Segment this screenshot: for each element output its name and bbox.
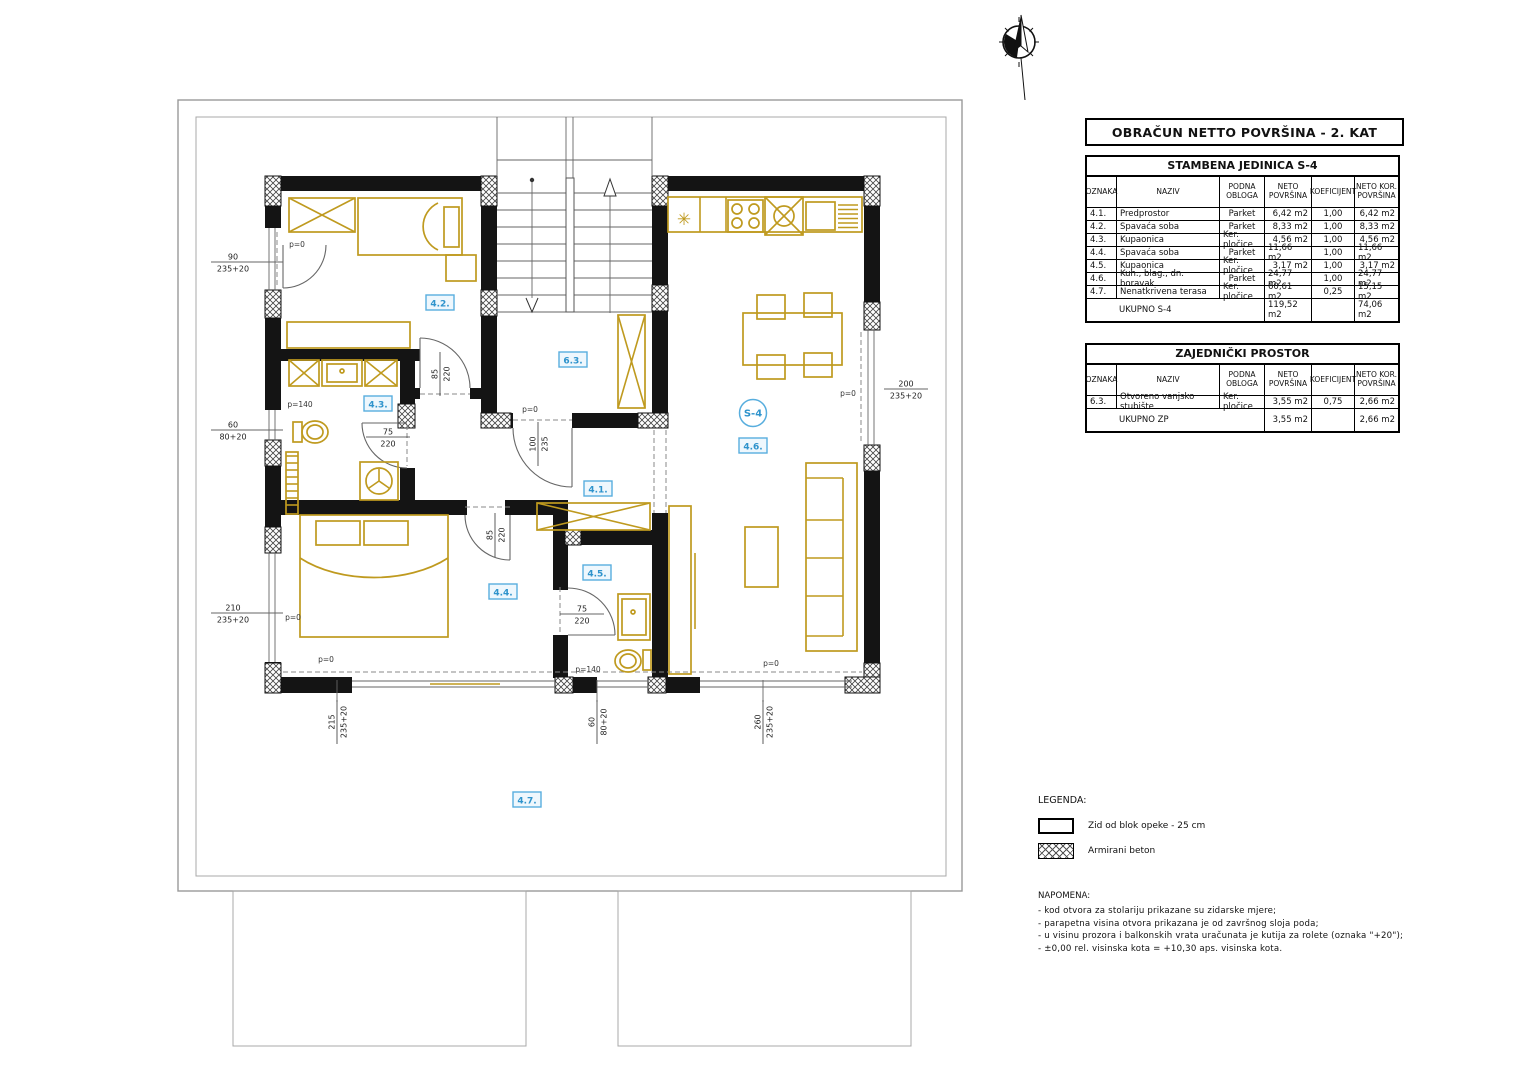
cell-podna: Ker. pločice: [1219, 233, 1264, 246]
cell-naziv: Spavaća soba: [1116, 220, 1219, 233]
wall-segment: [652, 513, 668, 677]
room-label: 4.5.: [583, 565, 611, 580]
cell-koeficijent: 1,00: [1311, 246, 1354, 259]
concrete-column: [565, 530, 581, 545]
cell-koeficijent: 1,00: [1311, 207, 1354, 220]
concrete-column: [864, 176, 880, 206]
concrete-column: [265, 527, 281, 553]
room-label: 4.3.: [364, 396, 392, 411]
concrete-column: [265, 290, 281, 318]
concrete-column: [265, 663, 281, 693]
furniture-item: [444, 207, 459, 247]
furniture-item: [316, 521, 360, 545]
column-header: PODNA OBLOGA: [1219, 365, 1264, 395]
table-title: ZAJEDNIČKI PROSTOR: [1087, 345, 1398, 365]
column-header: NETO POVRŠINA: [1264, 177, 1311, 207]
column-header: NAZIV: [1116, 177, 1219, 207]
cell-naziv: Kupaonica: [1116, 233, 1219, 246]
dimension-label: 85220: [486, 513, 507, 557]
furniture-item: [757, 295, 785, 319]
notes-title: NAPOMENA:: [1038, 891, 1403, 901]
concrete-column: [864, 302, 880, 330]
svg-text:100: 100: [529, 436, 538, 451]
reinforced-concrete-symbol: [1038, 843, 1074, 859]
wall-segment: [864, 445, 880, 693]
total-spacer: [1311, 298, 1354, 321]
legend-item-label: Zid od blok opeke - 25 cm: [1088, 821, 1205, 831]
concrete-column: [638, 413, 668, 428]
legend: LEGENDA: Zid od blok opeke - 25 cm Armir…: [1038, 795, 1205, 868]
room-label-text: 4.5.: [587, 570, 606, 580]
room-label: 4.7.: [513, 792, 541, 807]
concrete-column: [864, 445, 880, 471]
room-label-text: 4.1.: [588, 486, 607, 496]
total-label: UKUPNO ZP: [1087, 408, 1264, 431]
wall-segment: [415, 388, 420, 399]
cell-oznaka: 4.6.: [1087, 272, 1116, 285]
svg-text:220: 220: [443, 366, 452, 381]
total-spacer: [1311, 408, 1354, 431]
wall-segment: [652, 176, 880, 191]
cell-neto: 11,66 m2: [1264, 246, 1311, 259]
wall-segment: [265, 176, 497, 191]
parapet-label: p=140: [287, 400, 313, 409]
parapet-label: p=0: [289, 240, 305, 249]
stair-down-arrow-icon: [526, 298, 538, 312]
dimension-label: 85220: [431, 352, 452, 396]
svg-text:220: 220: [498, 527, 507, 542]
dimension-label: 200235+20: [884, 380, 928, 401]
total-label: UKUPNO S-4: [1087, 298, 1264, 321]
unit-label-text: S-4: [744, 409, 762, 420]
drawing-sheet: 4.1.4.2.4.3.4.4.4.5.4.6.4.7.6.3.S-490235…: [0, 0, 1527, 1080]
svg-text:235+20: 235+20: [217, 616, 249, 625]
concrete-column: [481, 290, 497, 316]
wall-segment: [281, 500, 467, 515]
svg-text:260: 260: [754, 714, 763, 729]
stair-railing: [566, 178, 574, 312]
cell-koeficijent: 0,75: [1311, 395, 1354, 408]
furniture-item: [622, 599, 646, 635]
furniture-item: [806, 202, 835, 230]
door-swing: [568, 588, 615, 635]
cell-neto-kor: 11,66 m2: [1354, 246, 1398, 259]
concrete-column: [555, 677, 573, 693]
svg-text:200: 200: [898, 380, 913, 389]
svg-text:80+20: 80+20: [600, 708, 609, 735]
room-label: 4.2.: [426, 295, 454, 310]
area-table: STAMBENA JEDINICA S-4OZNAKANAZIVPODNA OB…: [1085, 155, 1400, 323]
cell-neto: 8,33 m2: [1264, 220, 1311, 233]
cell-oznaka: 4.4.: [1087, 246, 1116, 259]
note-line: - parapetna visina otvora prikazana je o…: [1038, 919, 1403, 929]
svg-text:210: 210: [225, 604, 240, 613]
dimension-label: 6080+20: [588, 700, 609, 744]
svg-text:75: 75: [577, 605, 587, 614]
furniture-item: [757, 355, 785, 379]
svg-text:85: 85: [431, 369, 440, 379]
parapet-label: p=0: [285, 613, 301, 622]
concrete-column: [265, 440, 281, 466]
total-neto-kor: 2,66 m2: [1354, 408, 1398, 431]
room-label-text: 4.6.: [743, 443, 762, 453]
sheet-border: [618, 891, 911, 1046]
svg-text:235+20: 235+20: [766, 706, 775, 738]
wall-segment: [470, 388, 481, 399]
drawing-title: OBRAČUN NETTO POVRŠINA - 2. KAT: [1085, 118, 1404, 146]
room-label-text: 6.3.: [563, 357, 582, 367]
column-header: NETO POVRŠINA: [1264, 365, 1311, 395]
svg-text:85: 85: [486, 530, 495, 540]
cell-podna: Ker. pločice: [1219, 259, 1264, 272]
room-label: 4.4.: [489, 584, 517, 599]
cell-oznaka: 4.2.: [1087, 220, 1116, 233]
cell-neto-kor: 15,15 m2: [1354, 285, 1398, 298]
cell-oznaka: 6.3.: [1087, 395, 1116, 408]
column-header: NETO KOR. POVRŠINA: [1354, 177, 1398, 207]
concrete-column: [481, 413, 511, 428]
svg-text:80+20: 80+20: [219, 433, 246, 442]
cell-neto: 3,55 m2: [1264, 395, 1311, 408]
note-line: - u visinu prozora i balkonskih vrata ur…: [1038, 931, 1403, 941]
cell-naziv: Otvoreno vanjsko stubište: [1116, 395, 1219, 408]
svg-text:220: 220: [574, 617, 589, 626]
cell-koeficijent: 0,25: [1311, 285, 1354, 298]
legend-title: LEGENDA:: [1038, 795, 1205, 806]
svg-text:235: 235: [541, 436, 550, 451]
parapet-label: p=0: [522, 405, 538, 414]
column-header: PODNA OBLOGA: [1219, 177, 1264, 207]
cell-neto-kor: 8,33 m2: [1354, 220, 1398, 233]
cell-naziv: Kuh., blag., dn. boravak: [1116, 272, 1219, 285]
svg-text:220: 220: [380, 440, 395, 449]
dimension-label: 100235: [529, 422, 550, 466]
room-label-text: 4.2.: [430, 300, 449, 310]
area-table: ZAJEDNIČKI PROSTOROZNAKANAZIVPODNA OBLOG…: [1085, 343, 1400, 433]
furniture-item: [446, 255, 476, 281]
dimension-label: 75220: [560, 605, 604, 626]
cell-naziv: Predprostor: [1116, 207, 1219, 220]
room-label-text: 4.3.: [368, 401, 387, 411]
notes: NAPOMENA: - kod otvora za stolariju prik…: [1038, 891, 1403, 957]
cell-neto-kor: 2,66 m2: [1354, 395, 1398, 408]
furniture-item: [669, 506, 691, 674]
parapet-label: p=0: [840, 389, 856, 398]
cell-neto: 60,61 m2: [1264, 285, 1311, 298]
room-label: 4.1.: [584, 481, 612, 496]
staircase: [497, 178, 652, 312]
parapet-label: p=0: [763, 659, 779, 668]
total-neto: 3,55 m2: [1264, 408, 1311, 431]
dimension-label: 75220: [366, 428, 410, 449]
concrete-column: [648, 677, 666, 693]
sheet-border: [233, 891, 526, 1046]
svg-text:215: 215: [328, 714, 337, 729]
concrete-column: [398, 404, 415, 428]
svg-text:235+20: 235+20: [890, 392, 922, 401]
cell-neto: 6,42 m2: [1264, 207, 1311, 220]
wall-segment: [553, 635, 568, 683]
column-header: KOEFICIJENT: [1311, 177, 1354, 207]
cell-koeficijent: 1,00: [1311, 259, 1354, 272]
room-label-text: 4.7.: [517, 797, 536, 807]
column-header: NAZIV: [1116, 365, 1219, 395]
svg-text:235+20: 235+20: [340, 706, 349, 738]
dimension-label: 260235+20: [754, 700, 775, 744]
column-header: KOEFICIJENT: [1311, 365, 1354, 395]
cell-podna: Ker. pločice: [1219, 285, 1264, 298]
parapet-label: p=140: [575, 665, 601, 674]
legend-item-brick: Zid od blok opeke - 25 cm: [1038, 818, 1205, 834]
cell-podna: Parket: [1219, 207, 1264, 220]
concrete-column: [845, 677, 880, 693]
svg-text:75: 75: [383, 428, 393, 437]
cell-koeficijent: 1,00: [1311, 233, 1354, 246]
cell-naziv: Spavaća soba: [1116, 246, 1219, 259]
table-title: STAMBENA JEDINICA S-4: [1087, 157, 1398, 177]
cell-oznaka: 4.5.: [1087, 259, 1116, 272]
furniture-item: [806, 463, 857, 651]
room-label: 4.6.: [739, 438, 767, 453]
concrete-column: [265, 176, 281, 206]
note-line: - kod otvora za stolariju prikazane su z…: [1038, 906, 1403, 916]
dimension-label: 6080+20: [211, 421, 255, 442]
concrete-column: [652, 176, 668, 206]
furniture-item: [287, 322, 410, 348]
total-neto: 119,52 m2: [1264, 298, 1311, 321]
column-header: NETO KOR. POVRŠINA: [1354, 365, 1398, 395]
stair-up-arrow-icon: [604, 179, 616, 196]
svg-text:90: 90: [228, 253, 238, 262]
note-line: - ±0,00 rel. visinska kota = +10,30 aps.…: [1038, 944, 1403, 954]
svg-text:60: 60: [228, 421, 238, 430]
concrete-column: [481, 176, 497, 206]
cell-koeficijent: 1,00: [1311, 220, 1354, 233]
furniture-item: [364, 521, 408, 545]
parapet-label: p=0: [318, 655, 334, 664]
door-swing: [283, 245, 326, 288]
furniture-item: [293, 422, 302, 442]
svg-text:60: 60: [588, 717, 597, 727]
kitchen-sink-symbol: ✳: [677, 210, 691, 230]
furniture-item: [643, 650, 651, 670]
cell-naziv: Nenatkrivena terasa: [1116, 285, 1219, 298]
cell-koeficijent: 1,00: [1311, 272, 1354, 285]
cell-podna: Ker. pločice: [1219, 395, 1264, 408]
north-arrow-icon: [999, 15, 1039, 100]
furniture-item: [300, 515, 448, 637]
legend-item-label: Armirani beton: [1088, 846, 1155, 856]
cell-neto-kor: 6,42 m2: [1354, 207, 1398, 220]
legend-item-concrete: Armirani beton: [1038, 843, 1205, 859]
column-header: OZNAKA: [1087, 365, 1116, 395]
dimension-label: 90235+20: [211, 253, 255, 274]
room-label-text: 4.4.: [493, 589, 512, 599]
cell-oznaka: 4.7.: [1087, 285, 1116, 298]
room-label: 6.3.: [559, 352, 587, 367]
dimension-label: 215235+20: [328, 700, 349, 744]
dimension-label: 210235+20: [211, 604, 255, 625]
column-header: OZNAKA: [1087, 177, 1116, 207]
concrete-column: [652, 285, 668, 311]
cell-oznaka: 4.3.: [1087, 233, 1116, 246]
total-neto-kor: 74,06 m2: [1354, 298, 1398, 321]
svg-text:235+20: 235+20: [217, 265, 249, 274]
brick-wall-symbol: [1038, 818, 1074, 834]
cell-oznaka: 4.1.: [1087, 207, 1116, 220]
furniture-item: [745, 527, 778, 587]
